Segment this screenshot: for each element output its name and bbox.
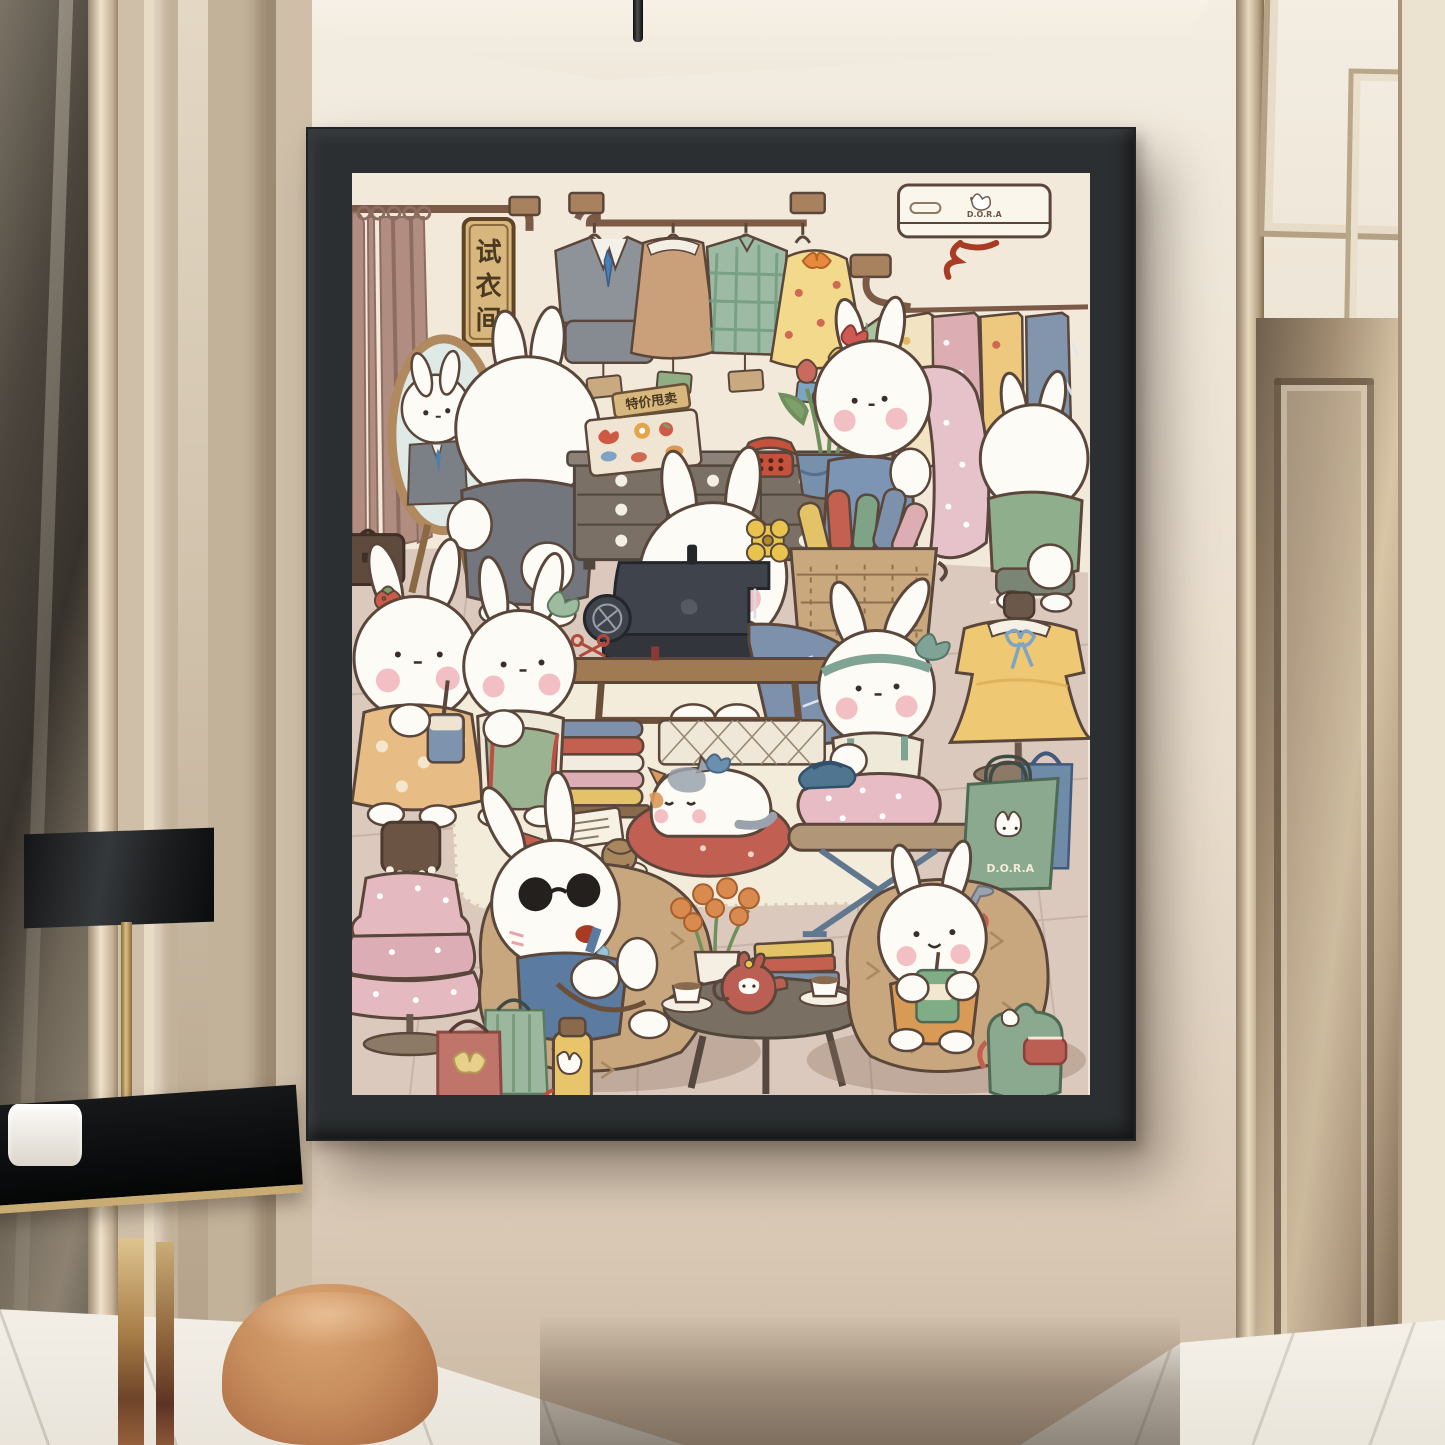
ac-ribbon [947, 243, 997, 277]
white-vessel [8, 1104, 82, 1166]
ac-brand-label: D.O.R.A [967, 210, 1003, 219]
left-pillar-sheen [178, 0, 208, 1445]
floor-shadow [540, 1315, 1180, 1445]
console-table-leg-2 [156, 1242, 174, 1445]
door-panel-molding [1274, 378, 1374, 1358]
sign-char-2: 衣 [476, 271, 502, 302]
tan-dress [631, 238, 717, 358]
bunny-illustration: 试 衣 间 [352, 173, 1090, 1095]
lamp-stem [121, 922, 132, 1098]
left-pillar-panel [118, 0, 312, 1445]
left-pillar-molding [144, 0, 276, 1445]
clothes-rack [555, 193, 864, 405]
right-edge-panel [1398, 0, 1445, 1445]
console-table-leg [118, 1238, 144, 1445]
air-conditioner: D.O.R.A [899, 185, 1051, 277]
lamp-shade [24, 828, 214, 929]
hanging-rod [633, 0, 643, 42]
mesh-basket [659, 720, 825, 764]
hallway-photo: 试 衣 间 [0, 0, 1445, 1445]
poster-frame: 试 衣 间 [306, 127, 1136, 1141]
green-backpack [980, 1004, 1066, 1095]
bag-brand-label: D.O.R.A [986, 862, 1034, 875]
pouf-stool [222, 1284, 438, 1445]
left-gold-trim [88, 0, 120, 1445]
poster-art: 试 衣 间 [352, 173, 1090, 1095]
sign-char-1: 试 [476, 238, 502, 268]
left-mirror-panel [0, 0, 92, 1445]
right-bronze-door [1256, 318, 1402, 1430]
